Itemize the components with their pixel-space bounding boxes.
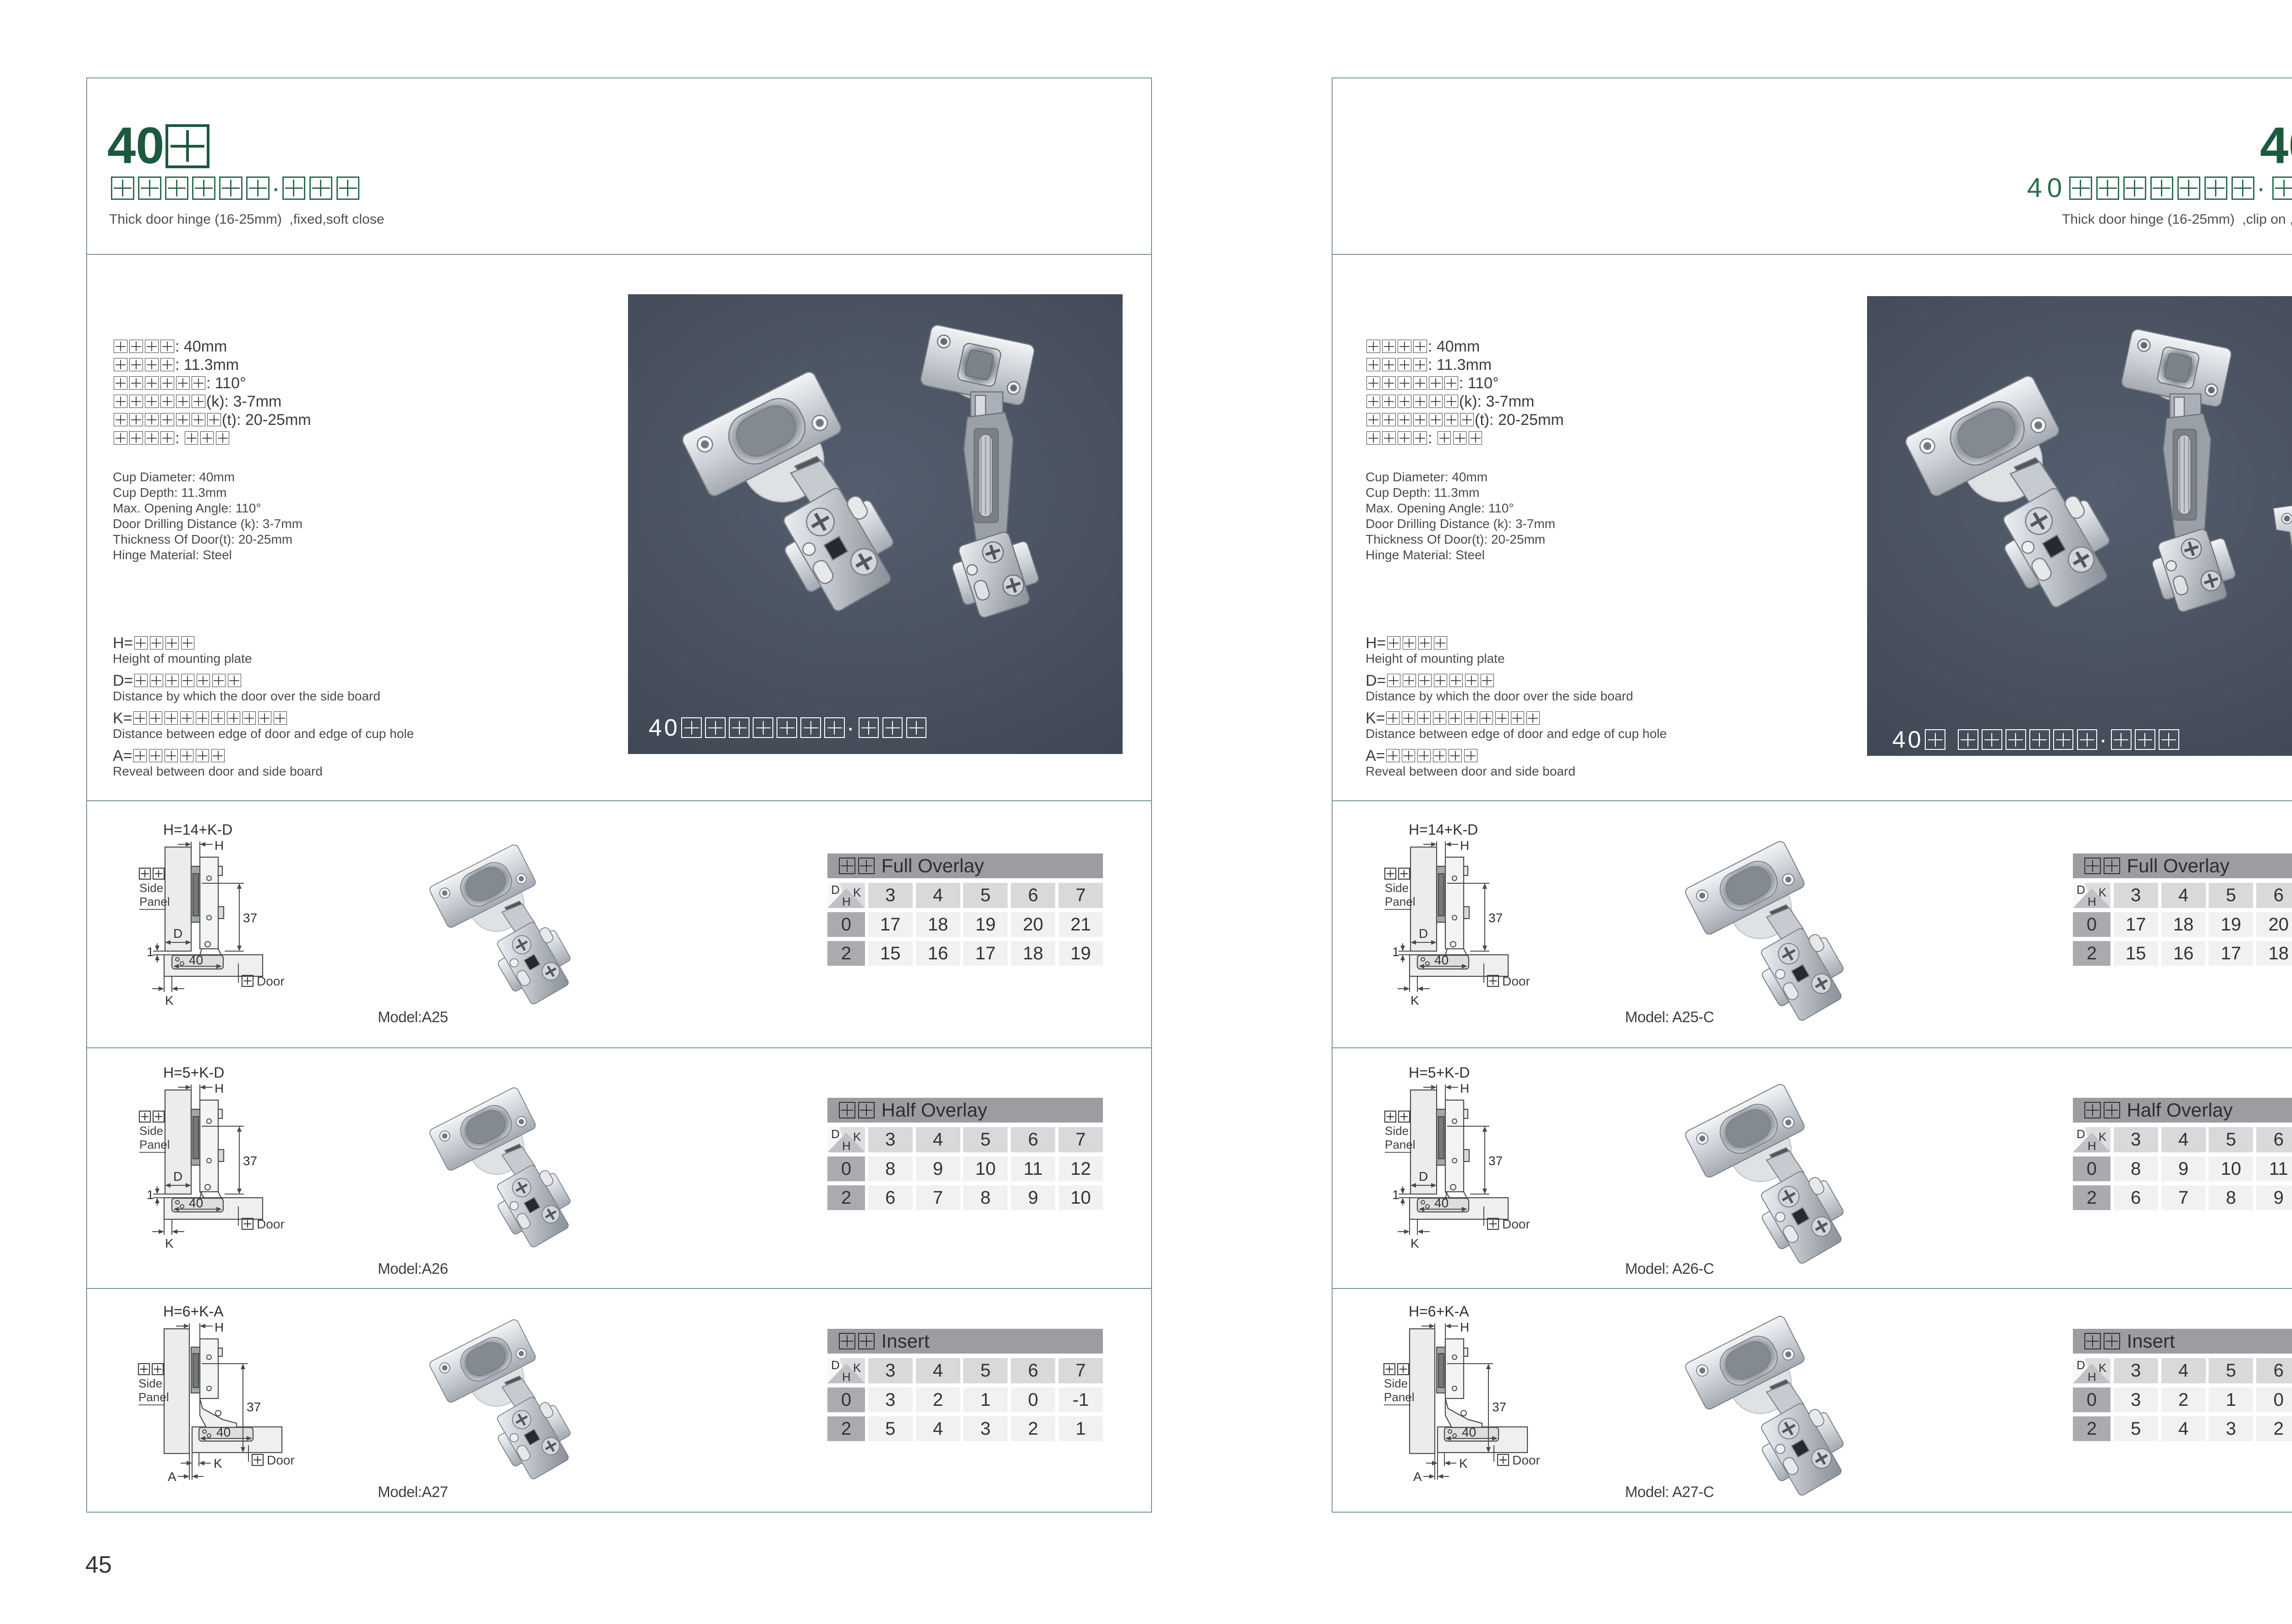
svg-text:H: H [1460, 1321, 1469, 1334]
svg-text:K: K [853, 886, 861, 899]
svg-text:K: K [1410, 1236, 1419, 1250]
svg-text:1: 1 [147, 1188, 154, 1202]
svg-text:D: D [2077, 1127, 2085, 1141]
svg-text:K: K [214, 1456, 222, 1470]
svg-text:K: K [853, 1361, 861, 1375]
svg-text:Side: Side [1384, 1376, 1408, 1390]
svg-text:H: H [215, 840, 224, 853]
svg-text:H: H [842, 1139, 851, 1152]
svg-text:40: 40 [189, 953, 203, 967]
svg-text:37: 37 [1488, 1154, 1503, 1168]
svg-text:K: K [165, 1236, 174, 1250]
svg-text:D: D [831, 1127, 840, 1141]
svg-text:Door: Door [267, 1453, 295, 1467]
svg-text:40: 40 [1462, 1425, 1476, 1439]
svg-text:37: 37 [243, 1154, 257, 1168]
svg-text:Door: Door [1502, 1217, 1530, 1231]
svg-text:H: H [1460, 1083, 1469, 1096]
svg-text:1: 1 [1392, 945, 1399, 959]
svg-text:A: A [1413, 1470, 1422, 1484]
svg-text:H: H [2088, 1370, 2096, 1383]
svg-text:37: 37 [1488, 911, 1503, 925]
svg-text:H: H [2088, 895, 2096, 908]
svg-text:37: 37 [243, 911, 257, 925]
svg-text:Door: Door [1502, 974, 1530, 988]
svg-text:Panel: Panel [138, 1390, 169, 1404]
svg-text:K: K [2099, 886, 2107, 899]
svg-text:1: 1 [147, 945, 154, 959]
svg-text:D: D [2077, 883, 2085, 897]
svg-text:K: K [2099, 1130, 2107, 1144]
svg-text:A: A [168, 1470, 176, 1484]
svg-text:H: H [215, 1083, 224, 1096]
svg-text:Door: Door [1512, 1453, 1540, 1467]
svg-text:40: 40 [1434, 953, 1449, 967]
svg-text:K: K [2099, 1361, 2107, 1375]
svg-text:Door: Door [257, 1217, 285, 1231]
svg-text:D: D [2077, 1358, 2085, 1372]
svg-text:Panel: Panel [1384, 1390, 1415, 1404]
svg-text:D: D [173, 926, 182, 941]
svg-text:D: D [831, 1358, 840, 1372]
svg-text:H: H [215, 1321, 224, 1334]
svg-text:H: H [842, 895, 851, 908]
svg-text:D: D [1419, 1169, 1428, 1184]
svg-text:Door: Door [257, 974, 285, 988]
svg-text:H: H [842, 1370, 851, 1383]
svg-text:Panel: Panel [139, 895, 170, 908]
svg-text:1: 1 [1392, 1188, 1399, 1202]
svg-text:Side: Side [1385, 881, 1409, 895]
svg-text:H: H [2088, 1139, 2096, 1152]
svg-text:Side: Side [139, 881, 163, 895]
svg-text:D: D [1419, 926, 1428, 941]
svg-text:Panel: Panel [139, 1138, 170, 1151]
svg-text:Side: Side [1385, 1124, 1409, 1138]
svg-text:H: H [1460, 840, 1469, 853]
svg-text:K: K [165, 993, 174, 1007]
svg-text:D: D [173, 1169, 182, 1184]
svg-text:Panel: Panel [1385, 1138, 1416, 1151]
svg-text:Panel: Panel [1385, 895, 1416, 908]
svg-text:40: 40 [1434, 1196, 1449, 1210]
svg-text:37: 37 [1492, 1400, 1506, 1414]
svg-text:Side: Side [139, 1124, 163, 1138]
svg-text:37: 37 [247, 1400, 261, 1414]
svg-text:Side: Side [138, 1376, 162, 1390]
svg-text:K: K [1459, 1456, 1468, 1470]
svg-text:40: 40 [189, 1196, 203, 1210]
svg-text:K: K [853, 1130, 861, 1144]
svg-text:40: 40 [216, 1425, 231, 1439]
svg-text:K: K [1410, 993, 1419, 1007]
svg-text:D: D [831, 883, 840, 897]
